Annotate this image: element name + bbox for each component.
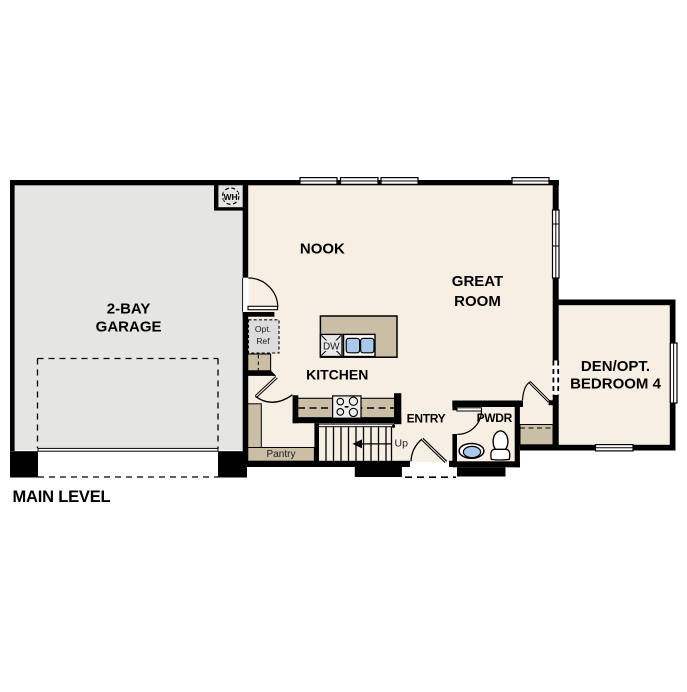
svg-text:PWDR: PWDR: [477, 411, 513, 425]
svg-text:Up: Up: [395, 437, 409, 449]
svg-text:Pantry: Pantry: [267, 449, 296, 460]
svg-text:GREAT: GREAT: [452, 273, 503, 290]
svg-text:ENTRY: ENTRY: [407, 411, 446, 425]
svg-text:KITCHEN: KITCHEN: [306, 367, 368, 383]
svg-text:DW: DW: [323, 342, 340, 353]
svg-text:GARAGE: GARAGE: [96, 319, 162, 336]
svg-text:Ref: Ref: [256, 336, 270, 346]
svg-text:DEN/OPT.: DEN/OPT.: [581, 358, 650, 375]
svg-text:ROOM: ROOM: [454, 293, 501, 310]
svg-text:Opt.: Opt.: [255, 324, 271, 334]
svg-text:WH: WH: [224, 192, 238, 202]
svg-text:BEDROOM 4: BEDROOM 4: [570, 376, 662, 393]
svg-text:NOOK: NOOK: [300, 241, 345, 258]
svg-text:MAIN LEVEL: MAIN LEVEL: [13, 488, 111, 506]
svg-text:2-BAY: 2-BAY: [107, 301, 151, 318]
